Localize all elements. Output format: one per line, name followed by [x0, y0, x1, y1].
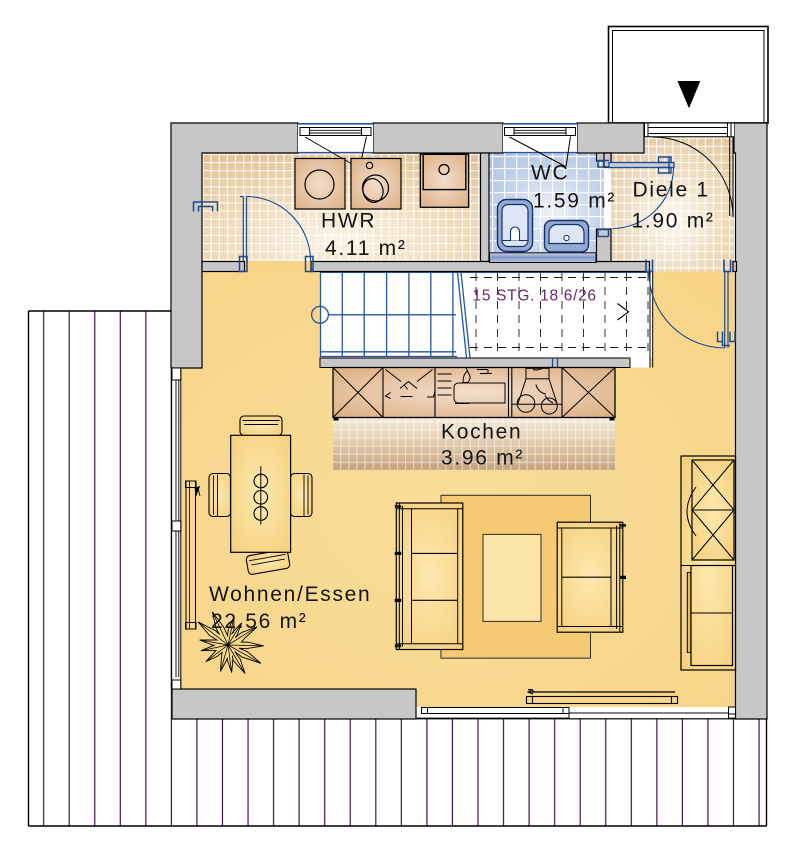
svg-text:1.59 m²: 1.59 m²: [533, 190, 616, 213]
svg-text:15 STG. 18 6/26: 15 STG. 18 6/26: [473, 288, 597, 305]
svg-text:4.11 m²: 4.11 m²: [325, 237, 407, 260]
svg-text:Diele 1: Diele 1: [633, 179, 710, 202]
svg-text:Kochen: Kochen: [441, 421, 522, 444]
svg-text:HWR: HWR: [321, 210, 376, 233]
svg-text:22.56 m²: 22.56 m²: [211, 610, 307, 633]
svg-text:WC: WC: [531, 162, 569, 185]
svg-text:3.96 m²: 3.96 m²: [441, 447, 524, 470]
svg-text:1.90 m²: 1.90 m²: [632, 210, 715, 233]
svg-text:Wohnen/Essen: Wohnen/Essen: [209, 583, 371, 606]
